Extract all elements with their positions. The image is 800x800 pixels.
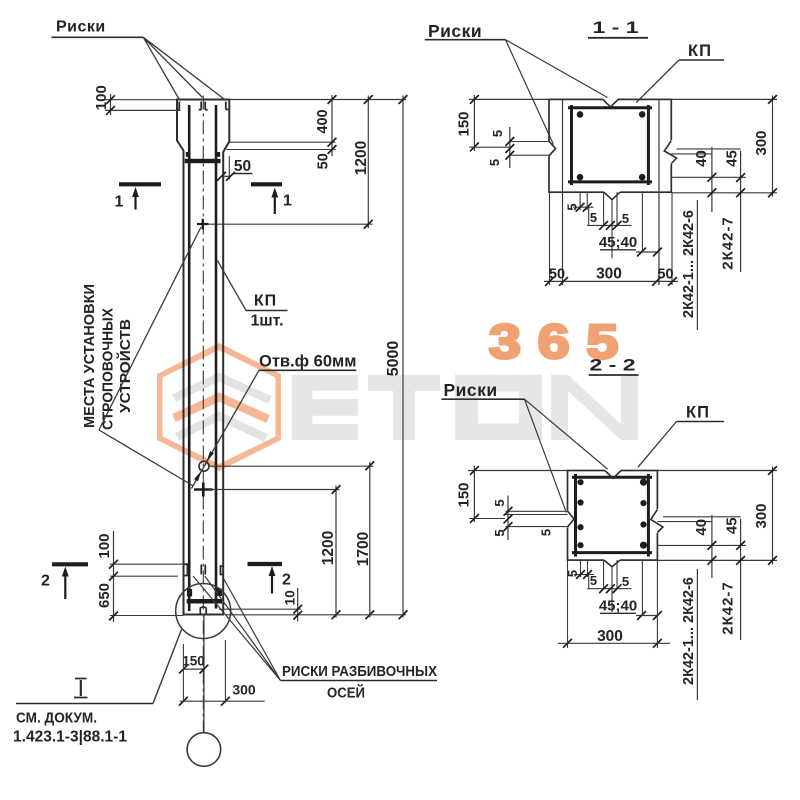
svg-text:300: 300 (596, 266, 622, 283)
svg-text:10: 10 (283, 590, 298, 605)
svg-text:5: 5 (492, 499, 507, 506)
svg-text:100: 100 (93, 85, 110, 110)
svg-text:2: 2 (282, 572, 291, 589)
svg-text:300: 300 (232, 682, 256, 698)
svg-text:2К42-7: 2К42-7 (720, 581, 737, 635)
svg-text:5: 5 (492, 529, 507, 536)
svg-text:СМ. ДОКУМ.: СМ. ДОКУМ. (16, 710, 97, 727)
svg-text:5: 5 (565, 203, 580, 210)
svg-text:Отв.ф 60мм: Отв.ф 60мм (259, 353, 356, 371)
svg-text:300: 300 (753, 503, 770, 528)
svg-text:400: 400 (315, 109, 331, 133)
svg-text:5: 5 (490, 130, 505, 137)
svg-text:Риски: Риски (56, 19, 106, 36)
svg-text:50: 50 (316, 153, 332, 169)
svg-text:45;40: 45;40 (599, 598, 637, 615)
svg-text:5: 5 (622, 211, 629, 226)
svg-text:100: 100 (96, 533, 113, 558)
svg-text:Риски: Риски (428, 21, 482, 41)
svg-text:5000: 5000 (385, 341, 402, 377)
svg-text:150: 150 (456, 482, 473, 507)
svg-text:5: 5 (590, 210, 597, 225)
svg-text:КП: КП (686, 404, 710, 422)
svg-text:МЕСТА УСТАНОВКИ: МЕСТА УСТАНОВКИ (81, 284, 98, 428)
svg-text:1: 1 (283, 193, 292, 210)
svg-text:1шт.: 1шт. (250, 313, 283, 330)
svg-text:РИСКИ РАЗБИВОЧНЫХ: РИСКИ РАЗБИВОЧНЫХ (282, 664, 437, 680)
svg-text:2К42-1... 2К42-6: 2К42-1... 2К42-6 (681, 210, 697, 318)
svg-text:5: 5 (487, 159, 502, 166)
svg-text:650: 650 (96, 583, 113, 608)
svg-text:300: 300 (597, 628, 623, 645)
svg-text:5: 5 (622, 574, 629, 589)
svg-text:40: 40 (693, 519, 710, 536)
svg-text:1 - 1: 1 - 1 (593, 18, 639, 37)
svg-text:50: 50 (657, 267, 673, 283)
svg-text:1.423.1-3|88.1-1: 1.423.1-3|88.1-1 (13, 729, 127, 746)
svg-text:Риски: Риски (444, 380, 498, 400)
svg-text:45: 45 (724, 150, 741, 167)
svg-text:5: 5 (539, 529, 554, 536)
svg-text:КП: КП (688, 42, 712, 60)
svg-text:ОСЕЙ: ОСЕЙ (327, 684, 365, 702)
svg-text:50: 50 (234, 158, 251, 175)
svg-text:2 - 2: 2 - 2 (590, 356, 636, 375)
svg-text:2К42-7: 2К42-7 (720, 216, 737, 270)
svg-text:1: 1 (115, 194, 124, 211)
svg-text:40: 40 (693, 150, 710, 167)
svg-text:150: 150 (456, 111, 473, 136)
svg-text:150: 150 (182, 654, 205, 669)
svg-text:1200: 1200 (320, 531, 337, 565)
svg-text:50: 50 (549, 267, 565, 283)
svg-text:2: 2 (41, 573, 50, 590)
svg-text:45: 45 (724, 517, 741, 534)
svg-text:45;40: 45;40 (599, 234, 637, 251)
svg-text:КП: КП (254, 293, 277, 310)
svg-text:5: 5 (590, 573, 597, 588)
svg-text:1200: 1200 (353, 141, 370, 175)
svg-text:2К42-1... 2К42-6: 2К42-1... 2К42-6 (681, 577, 697, 685)
svg-text:1700: 1700 (355, 532, 372, 566)
svg-text:300: 300 (753, 130, 770, 155)
